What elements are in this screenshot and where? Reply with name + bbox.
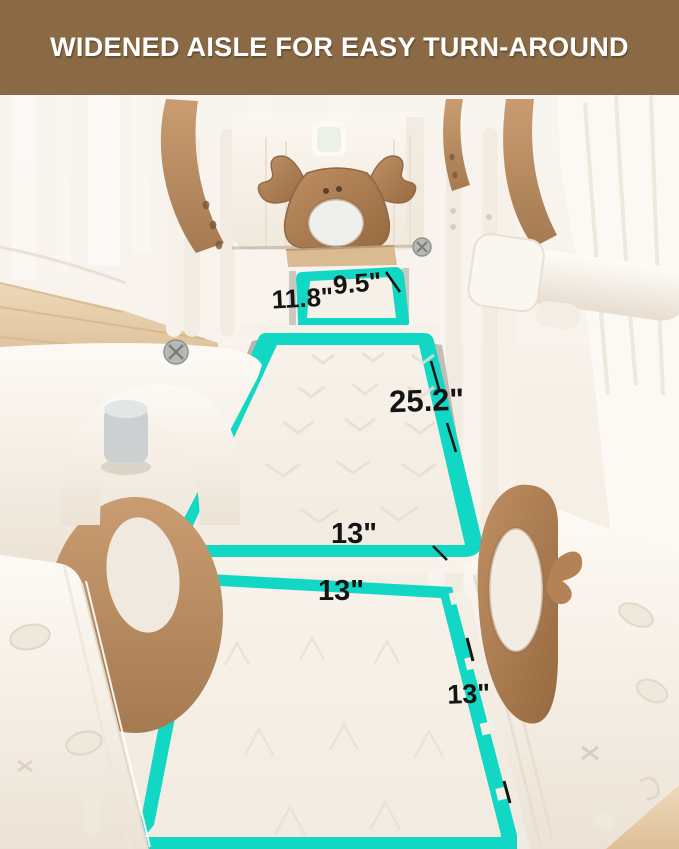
- label-mat-side-length: 13": [447, 678, 491, 709]
- deer-nostril: [336, 186, 342, 192]
- panel-hole: [486, 214, 492, 220]
- leg-hole: [216, 241, 223, 250]
- leg-hole: [203, 201, 210, 210]
- leg-hole: [452, 172, 457, 179]
- screw-right: [413, 238, 431, 256]
- leg-hole: [449, 154, 454, 161]
- panel-hole: [450, 208, 456, 214]
- deer-gate-panel: [232, 113, 424, 250]
- playset-scene: 11.8" 9.5" 25.2" 13" 13" 13": [0, 95, 679, 849]
- label-aisle-width: 13": [331, 518, 377, 550]
- gray-knob: [101, 400, 151, 475]
- gate-window: [312, 122, 346, 156]
- label-aisle-entry-depth: 11.8": [271, 281, 334, 314]
- crossbar-connector: [467, 232, 546, 313]
- label-aisle-entry-width: 9.5": [332, 266, 383, 300]
- screw-left: [164, 340, 188, 364]
- banner: WIDENED AISLE FOR EASY TURN-AROUND: [0, 0, 679, 95]
- board-slot: [84, 795, 100, 835]
- whale-hole: [489, 528, 543, 652]
- label-mat-width: 13": [318, 575, 364, 607]
- deer-nostril: [323, 188, 329, 194]
- panel-hole: [450, 224, 456, 230]
- leg-hole: [210, 221, 217, 230]
- banner-title: WIDENED AISLE FOR EASY TURN-AROUND: [50, 32, 629, 63]
- playset-photo: 11.8" 9.5" 25.2" 13" 13" 13": [0, 95, 679, 849]
- product-image-page: WIDENED AISLE FOR EASY TURN-AROUND: [0, 0, 679, 849]
- deer-mouth-hole: [308, 199, 364, 247]
- label-aisle-length: 25.2": [389, 382, 465, 420]
